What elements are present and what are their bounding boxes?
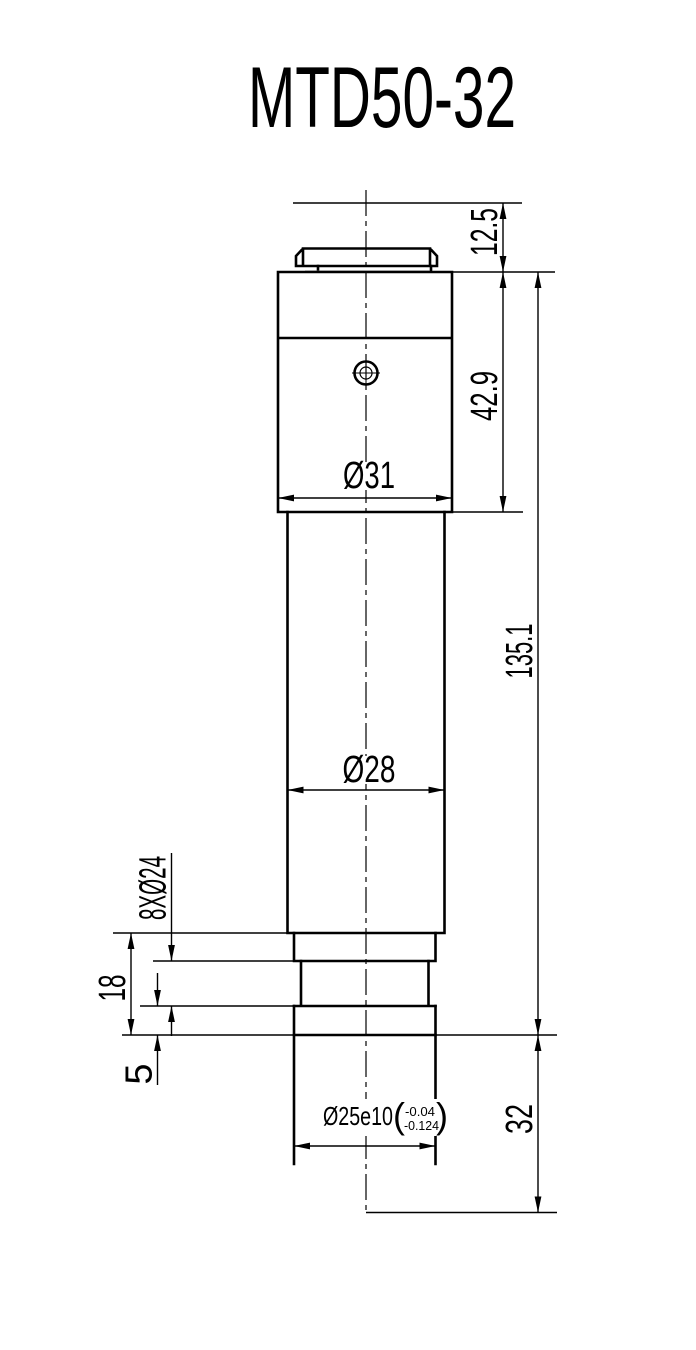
callout-flange-holes: 8XØ24 xyxy=(133,856,175,920)
arrowheads xyxy=(128,203,542,1213)
tolerance-lower: -0.124 xyxy=(404,1118,439,1133)
technical-drawing: MTD50-32 12.5 42.9 Ø31 135.1 Ø28 8XØ24 1… xyxy=(0,0,696,1350)
screw-hole xyxy=(352,359,380,387)
tolerance-paren-close: ) xyxy=(436,1095,448,1136)
dia-spigot: Ø25e10 xyxy=(323,1101,393,1131)
dim-overall-length: 135.1 xyxy=(499,624,541,679)
dia-head: Ø31 xyxy=(343,455,395,497)
drawing-canvas: MTD50-32 12.5 42.9 Ø31 135.1 Ø28 8XØ24 1… xyxy=(0,0,696,1350)
dim-head-height: 42.9 xyxy=(464,371,506,421)
dim-flange-height: 18 xyxy=(92,975,134,1002)
flange-rings xyxy=(294,933,436,1035)
extension-lines xyxy=(113,203,557,1213)
dia-tube: Ø28 xyxy=(343,749,396,791)
dim-spigot-length: 32 xyxy=(499,1104,541,1134)
dimension-lines xyxy=(131,203,538,1213)
part-title: MTD50-32 xyxy=(248,50,516,146)
tolerance-upper: -0.04 xyxy=(405,1104,435,1119)
dim-ring-height: 5 xyxy=(119,1063,161,1084)
dim-cap-height: 12.5 xyxy=(464,208,506,256)
